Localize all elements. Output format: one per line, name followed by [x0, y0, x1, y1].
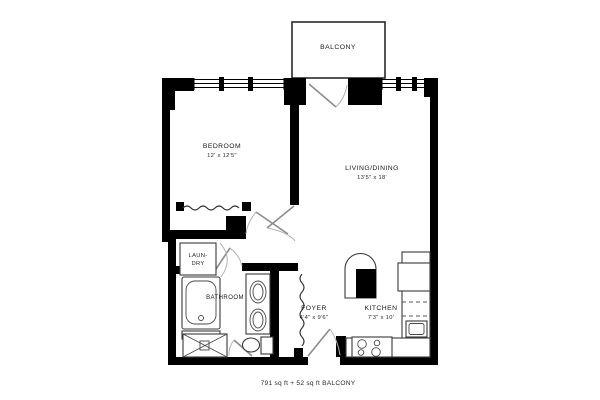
wall-bathroom-north	[242, 263, 298, 271]
wall-left-lower	[168, 235, 176, 365]
laundry-unit: LAUN- DRY	[180, 243, 216, 275]
living-dining-dims: 13'5" x 18'	[357, 175, 387, 181]
laundry-label-line2: DRY	[191, 261, 204, 267]
wall-bottom-right	[340, 357, 438, 365]
kitchen-label: KITCHEN	[365, 305, 398, 312]
kitchen-dims: 7'3" x 10'	[368, 315, 394, 321]
wall-bedroom-door-jamb	[226, 216, 246, 239]
bedroom-closet-wavy-line	[183, 206, 239, 210]
foyer-dims: 4'4" x 9'6"	[300, 315, 329, 321]
shower	[183, 334, 227, 357]
bathroom-door	[216, 248, 242, 269]
living-window	[382, 77, 424, 91]
hall-living-door	[267, 206, 295, 241]
wall-top-column	[348, 78, 382, 105]
wall-bedroom-living-divider	[290, 86, 299, 205]
floorplan-drawing: BALCONY	[0, 0, 600, 400]
bathroom-fixtures	[182, 274, 273, 357]
kitchen-bar-arch	[345, 253, 376, 298]
refrigerator	[398, 263, 430, 291]
window-mullion	[219, 77, 224, 91]
bathroom-label: BATHROOM	[206, 295, 244, 301]
living-dining-label: LIVING/DINING	[345, 165, 399, 172]
wall-left-upper	[162, 78, 170, 242]
closet-end-block-left	[176, 202, 184, 211]
area-caption: 791 sq ft + 52 sq ft BALCONY	[261, 380, 356, 387]
toilet	[243, 337, 274, 354]
wall-closet-bottom-block	[294, 348, 303, 358]
wall-bottom-left	[168, 357, 308, 365]
window-mullion	[412, 77, 417, 91]
bedroom-dims: 12' x 12'5"	[207, 153, 237, 159]
balcony-door	[309, 84, 347, 107]
wall-bedroom-south	[168, 230, 230, 239]
bedroom-label: BEDROOM	[203, 143, 241, 150]
floorplan-page: BALCONY	[0, 0, 600, 400]
balcony-area: BALCONY	[292, 22, 385, 78]
foyer-label: FOYER	[301, 305, 327, 312]
vanity	[246, 274, 270, 334]
kitchen-bar-block	[356, 269, 376, 298]
window-mullion	[248, 77, 253, 91]
entry-door	[308, 329, 340, 356]
washer-dryer-box	[180, 243, 216, 275]
closet-end-block-right	[242, 202, 251, 211]
stove	[352, 337, 392, 357]
balcony-label: BALCONY	[320, 44, 356, 51]
kitchen-sink	[406, 321, 427, 337]
wall-foyer-kitchen-stub	[336, 336, 346, 357]
laundry-label-line1: LAUN-	[189, 253, 208, 259]
wall-right	[430, 78, 438, 365]
bedroom-window	[194, 77, 284, 91]
window-mullion	[396, 77, 401, 91]
